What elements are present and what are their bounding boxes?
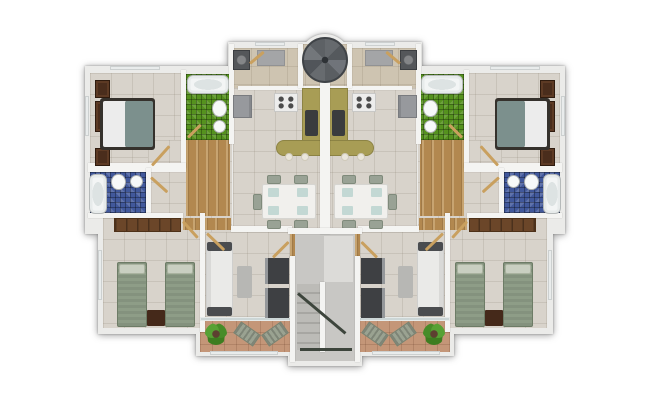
floor-plan <box>0 0 650 400</box>
spiral-staircase <box>302 37 348 83</box>
hall-doorway-threshold <box>290 234 295 256</box>
hall-side-wall <box>290 256 295 362</box>
central-party-wall <box>320 58 330 234</box>
hall-doorway-threshold <box>355 234 360 256</box>
hall-top-wall <box>288 228 362 234</box>
shared-core-structures <box>0 0 650 400</box>
hall-side-wall <box>355 256 360 362</box>
stair-handrail <box>300 348 352 351</box>
